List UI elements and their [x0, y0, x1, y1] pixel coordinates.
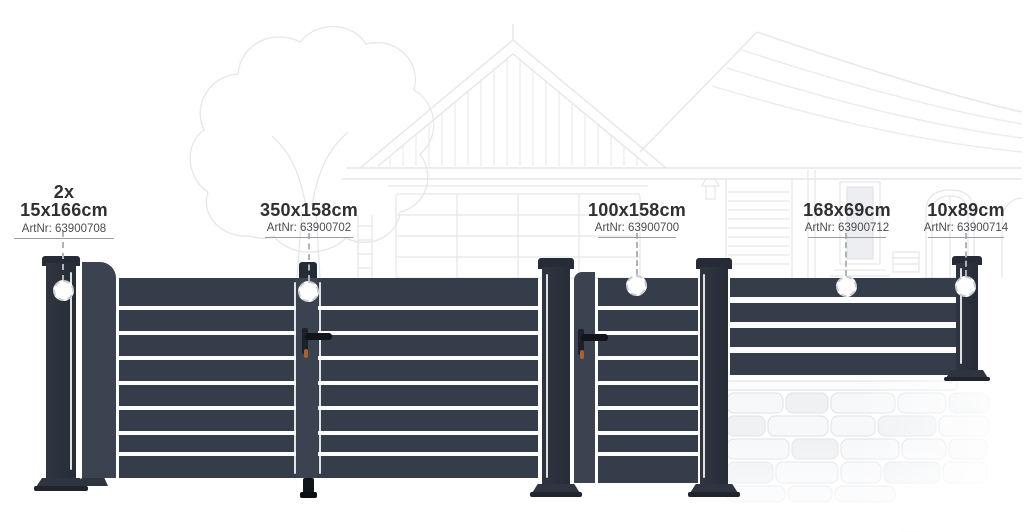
dimension-label: 15x166cm: [14, 201, 114, 219]
callout-single-gate: 100x158cm ArtNr: 63900700: [588, 201, 686, 238]
label-underline: [928, 237, 1004, 238]
callout-end-post: 10x89cm ArtNr: 63900714: [924, 201, 1008, 238]
post-highlight: [703, 274, 705, 478]
dimension-label: 350x158cm: [260, 201, 358, 219]
slat-gap: [730, 322, 956, 328]
label-underline: [598, 237, 676, 238]
artnr-label: ArtNr: 63900700: [588, 222, 686, 234]
house-roof-sketch: [342, 24, 1022, 179]
drop-bolt: [303, 478, 314, 493]
dimension-label: 100x158cm: [588, 201, 686, 219]
artnr-label: ArtNr: 63900712: [803, 222, 891, 234]
gate-handle-icon: [581, 334, 608, 341]
dimension-label: 10x89cm: [924, 201, 1008, 219]
slat-gap: [119, 452, 538, 456]
slat-gap: [119, 306, 538, 310]
gate-post-baseplate: [530, 492, 582, 497]
tree-sketch: [190, 26, 433, 278]
anchor-marker-icon: [836, 276, 857, 297]
callout-posts: 2x 15x166cm ArtNr: 63900708: [14, 183, 114, 239]
slat-gap: [598, 406, 698, 410]
double-gate-350: [119, 278, 538, 478]
label-underline: [808, 237, 886, 238]
leader-line: [636, 233, 638, 275]
stile-highlight: [319, 282, 321, 474]
slat-gap: [730, 347, 956, 353]
end-post-baseplate: [944, 377, 990, 381]
slat-gap: [119, 381, 538, 385]
anchor-marker-icon: [955, 276, 976, 297]
keyhole-icon: [304, 349, 308, 358]
slat-gap: [119, 356, 538, 360]
leader-line: [308, 233, 310, 281]
single-gate-stile: [574, 272, 595, 483]
slat-gap: [598, 381, 698, 385]
anchor-marker-icon: [298, 281, 319, 302]
gate-post-baseplate: [688, 492, 740, 497]
left-post-baseplate: [34, 486, 88, 491]
leader-line: [965, 233, 967, 276]
gate-handle-icon: [305, 333, 332, 340]
slat-gap: [598, 331, 698, 335]
post-highlight: [70, 272, 72, 470]
artnr-label: ArtNr: 63900714: [924, 222, 1008, 234]
single-gate-100: [598, 278, 698, 483]
quantity-label: 2x: [14, 183, 114, 201]
label-underline: [265, 237, 353, 238]
callout-fence-panel: 168x69cm ArtNr: 63900712: [803, 201, 891, 238]
fence-product-illustration: 2x 15x166cm ArtNr: 63900708 350x158cm Ar…: [0, 0, 1024, 532]
slat-gap: [119, 406, 538, 410]
anchor-marker-icon: [626, 275, 647, 296]
stile-highlight: [294, 282, 296, 474]
label-underline: [14, 238, 114, 239]
slat-gap: [598, 306, 698, 310]
artnr-label: ArtNr: 63900702: [260, 222, 358, 234]
leader-line: [845, 233, 847, 276]
slat-gap: [730, 297, 956, 303]
drop-bolt-foot: [300, 492, 317, 498]
double-gate-center-stile: [296, 278, 318, 478]
post-highlight: [546, 274, 548, 478]
dimension-label: 168x69cm: [803, 201, 891, 219]
artnr-label: ArtNr: 63900708: [14, 223, 114, 235]
anchor-marker-icon: [53, 280, 74, 301]
callout-double-gate: 350x158cm ArtNr: 63900702: [260, 201, 358, 238]
double-gate-hinge-stile: [82, 262, 116, 478]
slat-gap: [598, 431, 698, 435]
slat-gap: [119, 431, 538, 435]
keyhole-icon: [580, 350, 584, 359]
slat-gap: [598, 452, 698, 456]
hinge-stile-base: [78, 478, 108, 486]
slat-gap: [598, 356, 698, 360]
